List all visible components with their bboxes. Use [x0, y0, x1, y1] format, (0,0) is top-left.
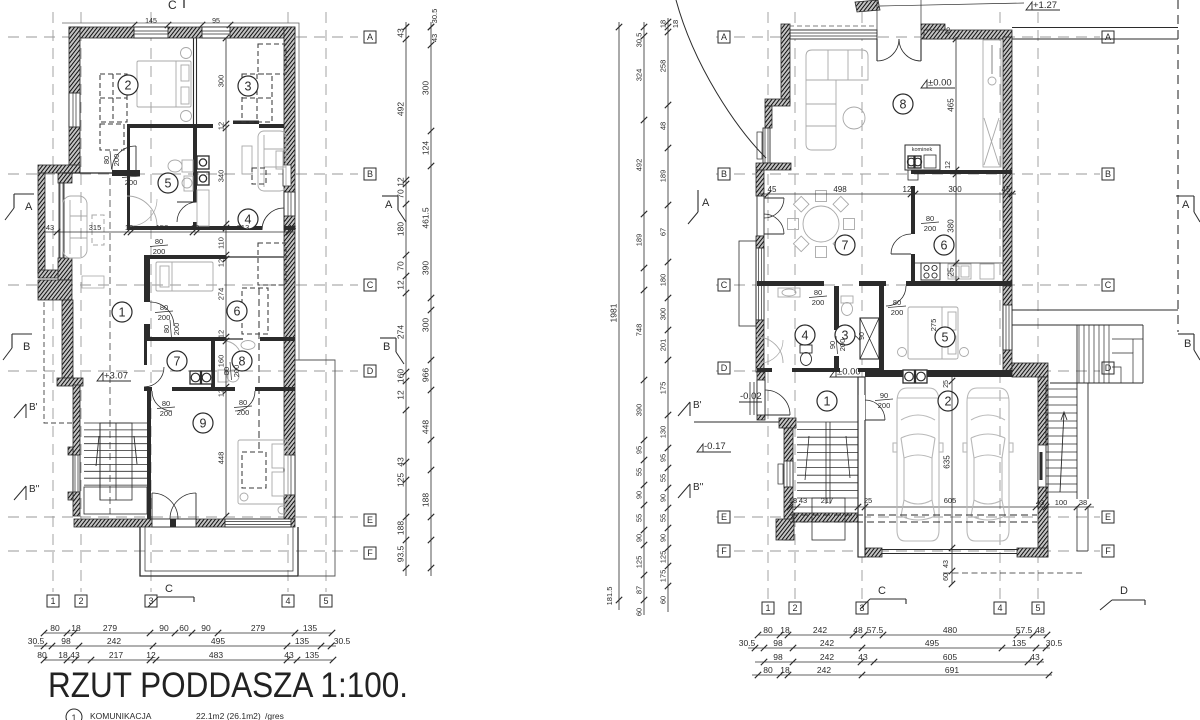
svg-text:145: 145	[145, 18, 157, 25]
svg-text:300: 300	[948, 185, 962, 194]
svg-text:12: 12	[945, 161, 952, 169]
svg-text:B: B	[367, 169, 373, 179]
svg-text:48: 48	[853, 625, 863, 635]
svg-text:135: 135	[295, 636, 309, 646]
svg-text:5: 5	[165, 177, 172, 191]
svg-text:A: A	[702, 197, 710, 209]
svg-text:483: 483	[209, 650, 223, 660]
svg-text:2: 2	[945, 395, 952, 409]
svg-text:B: B	[23, 341, 30, 353]
svg-text:200: 200	[838, 339, 847, 352]
svg-text:43: 43	[46, 223, 54, 232]
svg-text:55: 55	[659, 474, 668, 482]
svg-text:12: 12	[146, 650, 156, 660]
svg-text:18: 18	[71, 623, 81, 633]
svg-text:D: D	[1105, 363, 1112, 373]
svg-text:55: 55	[635, 514, 644, 522]
svg-text:18: 18	[659, 20, 668, 28]
svg-text:2: 2	[78, 596, 83, 606]
svg-text:300: 300	[421, 318, 431, 332]
svg-text:B: B	[1105, 169, 1111, 179]
svg-text:C: C	[721, 280, 728, 290]
svg-text:125: 125	[635, 556, 644, 569]
svg-text:A: A	[721, 32, 727, 42]
svg-text:B: B	[383, 341, 390, 353]
svg-text:22.1m2 (26.1m2): 22.1m2 (26.1m2)	[196, 711, 261, 720]
svg-text:124: 124	[421, 141, 431, 155]
svg-text:160: 160	[217, 355, 226, 368]
svg-text:275: 275	[929, 319, 938, 332]
svg-text:F: F	[721, 546, 727, 556]
svg-text:43: 43	[288, 223, 296, 232]
svg-text:175: 175	[659, 382, 668, 395]
svg-text:B': B'	[693, 400, 702, 411]
svg-text:80: 80	[162, 325, 171, 333]
svg-text:57.5: 57.5	[1016, 625, 1033, 635]
svg-text:461.5: 461.5	[421, 207, 431, 229]
svg-text:12: 12	[396, 390, 406, 400]
svg-text:38: 38	[1079, 498, 1087, 507]
svg-text:KOMUNIKACJA: KOMUNIKACJA	[90, 711, 152, 720]
svg-text:E: E	[367, 515, 373, 525]
svg-text:200: 200	[812, 298, 825, 307]
svg-text:200: 200	[891, 308, 904, 317]
svg-text:90: 90	[859, 332, 866, 340]
svg-text:90: 90	[635, 491, 644, 499]
svg-text:160: 160	[396, 369, 406, 383]
svg-text:8: 8	[900, 98, 907, 112]
svg-text:1: 1	[119, 306, 126, 320]
svg-text:A: A	[367, 32, 373, 42]
svg-text:90: 90	[828, 341, 837, 349]
svg-text:25: 25	[947, 267, 956, 276]
svg-text:30.5: 30.5	[28, 636, 45, 646]
svg-text:200: 200	[158, 313, 171, 322]
svg-text:6: 6	[234, 305, 241, 319]
svg-text:12: 12	[217, 389, 226, 397]
svg-text:30.5: 30.5	[1046, 638, 1063, 648]
svg-text:492: 492	[635, 159, 644, 172]
svg-text:/gres: /gres	[265, 711, 284, 720]
svg-text:201: 201	[659, 339, 668, 352]
svg-text:30.5: 30.5	[334, 636, 351, 646]
svg-text:43: 43	[70, 650, 80, 660]
svg-text:80: 80	[155, 237, 163, 246]
svg-text:279: 279	[103, 623, 117, 633]
svg-text:80: 80	[127, 168, 135, 177]
svg-text:12: 12	[217, 122, 226, 130]
svg-text:3: 3	[245, 80, 252, 94]
svg-text:45: 45	[768, 185, 777, 194]
svg-text:5: 5	[323, 596, 328, 606]
svg-text:B: B	[1184, 338, 1191, 350]
svg-text:93.5: 93.5	[396, 545, 406, 562]
svg-text:635: 635	[943, 455, 952, 469]
svg-text:55: 55	[635, 468, 644, 476]
svg-text:200: 200	[112, 154, 121, 167]
svg-text:80: 80	[37, 650, 47, 660]
svg-text:90: 90	[159, 623, 169, 633]
svg-text:18: 18	[780, 665, 790, 675]
svg-text:7: 7	[174, 355, 181, 369]
svg-text:448: 448	[421, 420, 431, 434]
svg-text:43: 43	[1030, 652, 1040, 662]
svg-text:300: 300	[421, 81, 431, 95]
svg-text:217: 217	[109, 650, 123, 660]
svg-text:200: 200	[160, 409, 173, 418]
svg-text:87: 87	[635, 586, 644, 594]
svg-text:300: 300	[659, 308, 668, 321]
svg-text:90: 90	[201, 623, 211, 633]
svg-text:691: 691	[945, 665, 959, 675]
svg-text:A: A	[25, 201, 33, 213]
svg-text:2: 2	[792, 603, 797, 613]
svg-text:48: 48	[659, 122, 668, 130]
svg-text:480: 480	[943, 625, 957, 635]
svg-text:60: 60	[659, 596, 668, 604]
svg-text:200: 200	[878, 401, 891, 410]
svg-text:43: 43	[943, 560, 950, 568]
svg-text:242: 242	[820, 652, 834, 662]
svg-text:18: 18	[780, 625, 790, 635]
svg-text:98: 98	[61, 636, 71, 646]
svg-text:55: 55	[659, 514, 668, 522]
svg-text:B'': B''	[693, 482, 704, 493]
svg-text:30.5: 30.5	[739, 638, 756, 648]
svg-text:12: 12	[217, 330, 226, 338]
svg-text:+1.27: +1.27	[1033, 0, 1057, 11]
svg-text:242: 242	[813, 625, 827, 635]
svg-text:80: 80	[50, 623, 60, 633]
svg-text:1: 1	[71, 713, 76, 720]
svg-text:90: 90	[880, 391, 888, 400]
svg-text:C: C	[367, 280, 374, 290]
svg-text:2: 2	[125, 79, 132, 93]
svg-text:70: 70	[396, 189, 406, 199]
svg-text:12: 12	[396, 177, 406, 187]
svg-text:45: 45	[1002, 185, 1011, 194]
svg-text:279: 279	[251, 623, 265, 633]
svg-text:135: 135	[1012, 638, 1026, 648]
svg-text:A: A	[385, 199, 393, 211]
svg-text:80: 80	[239, 398, 247, 407]
svg-text:1: 1	[824, 395, 831, 409]
svg-text:B'': B''	[29, 484, 40, 495]
svg-text:-0.17: -0.17	[704, 441, 726, 452]
svg-text:217: 217	[821, 496, 834, 505]
svg-text:274: 274	[396, 325, 406, 339]
svg-text:±0.00: ±0.00	[928, 78, 952, 89]
svg-text:5: 5	[942, 331, 949, 345]
svg-text:12: 12	[191, 223, 199, 232]
svg-text:390: 390	[421, 261, 431, 275]
svg-text:125: 125	[396, 473, 406, 487]
svg-text:242: 242	[820, 638, 834, 648]
svg-text:B: B	[721, 169, 727, 179]
svg-text:C: C	[168, 0, 177, 12]
svg-text:110: 110	[217, 237, 226, 249]
svg-text:180: 180	[396, 222, 406, 236]
svg-text:-0.02: -0.02	[740, 391, 762, 402]
svg-text:80: 80	[162, 399, 170, 408]
svg-text:C: C	[1105, 280, 1112, 290]
svg-text:189: 189	[635, 234, 644, 247]
svg-text:6: 6	[941, 239, 948, 253]
svg-text:60: 60	[635, 608, 644, 616]
svg-text:90: 90	[659, 534, 668, 542]
svg-text:95: 95	[212, 18, 220, 25]
svg-text:495: 495	[211, 636, 225, 646]
svg-text:313: 313	[237, 223, 250, 232]
svg-text:200: 200	[153, 247, 166, 256]
svg-text:135: 135	[303, 623, 317, 633]
svg-text:67: 67	[659, 228, 668, 236]
svg-text:43: 43	[1036, 498, 1044, 507]
svg-text:80: 80	[926, 214, 934, 223]
svg-text:43: 43	[396, 457, 406, 467]
svg-text:B': B'	[29, 402, 38, 413]
svg-text:E: E	[1105, 512, 1111, 522]
svg-text:F: F	[1105, 546, 1111, 556]
svg-text:12: 12	[396, 280, 406, 290]
svg-text:324: 324	[635, 69, 644, 82]
svg-text:kominek: kominek	[912, 147, 933, 153]
svg-text:200: 200	[237, 408, 250, 417]
svg-text:242: 242	[817, 665, 831, 675]
svg-text:A: A	[1105, 32, 1111, 42]
svg-text:43: 43	[799, 496, 807, 505]
svg-text:200: 200	[172, 323, 181, 336]
svg-text:12: 12	[903, 185, 912, 194]
svg-text:95: 95	[635, 446, 644, 454]
svg-text:135: 135	[305, 650, 319, 660]
svg-text:80: 80	[763, 665, 773, 675]
svg-text:D: D	[721, 363, 728, 373]
svg-text:130: 130	[659, 426, 668, 439]
svg-text:340: 340	[217, 170, 226, 183]
svg-text:70: 70	[396, 261, 406, 271]
svg-text:30.5: 30.5	[635, 33, 644, 48]
svg-text:498: 498	[833, 185, 847, 194]
svg-text:18: 18	[58, 650, 68, 660]
svg-text:18: 18	[671, 20, 680, 28]
svg-text:1: 1	[50, 596, 55, 606]
svg-text:±0.00: ±0.00	[837, 367, 861, 378]
svg-text:98: 98	[773, 652, 783, 662]
svg-text:80: 80	[160, 303, 168, 312]
svg-text:80: 80	[814, 288, 822, 297]
svg-text:605: 605	[943, 652, 957, 662]
svg-text:158: 158	[156, 223, 169, 232]
svg-text:C: C	[878, 585, 886, 597]
svg-text:1981: 1981	[609, 303, 619, 322]
svg-text:125: 125	[659, 551, 668, 564]
svg-text:100: 100	[1055, 498, 1068, 507]
svg-text:80: 80	[893, 298, 901, 307]
svg-text:D: D	[1120, 585, 1128, 597]
svg-text:188: 188	[421, 493, 431, 507]
svg-text:492: 492	[396, 102, 406, 116]
svg-text:12: 12	[217, 259, 226, 267]
svg-text:495: 495	[925, 638, 939, 648]
svg-text:90: 90	[635, 534, 644, 542]
svg-text:RZUT PODDASZA 1:100.: RZUT PODDASZA 1:100.	[48, 666, 408, 705]
svg-text:315: 315	[89, 223, 102, 232]
svg-text:448: 448	[217, 452, 226, 465]
svg-text:1: 1	[765, 603, 770, 613]
svg-text:E: E	[721, 512, 727, 522]
svg-text:98: 98	[773, 638, 783, 648]
svg-text:43: 43	[858, 652, 868, 662]
svg-text:188: 188	[396, 521, 406, 535]
svg-text:5: 5	[1035, 603, 1040, 613]
svg-text:43: 43	[284, 650, 294, 660]
svg-text:12: 12	[125, 223, 133, 232]
svg-text:D: D	[367, 366, 374, 376]
svg-text:180: 180	[659, 274, 668, 287]
svg-text:966: 966	[421, 368, 431, 382]
svg-text:30.5: 30.5	[430, 9, 439, 24]
svg-text:175: 175	[659, 570, 668, 583]
svg-text:465: 465	[947, 98, 956, 112]
svg-text:43: 43	[430, 34, 439, 42]
svg-text:189: 189	[659, 170, 668, 183]
svg-text:A: A	[1182, 199, 1190, 211]
svg-text:200: 200	[924, 224, 937, 233]
svg-text:181.5: 181.5	[605, 587, 614, 606]
svg-text:80: 80	[102, 156, 111, 164]
svg-text:9: 9	[200, 417, 207, 431]
svg-text:95: 95	[659, 454, 668, 462]
svg-text:90: 90	[659, 494, 668, 502]
svg-text:45: 45	[945, 27, 952, 35]
svg-text:300: 300	[217, 75, 226, 88]
svg-text:60: 60	[179, 623, 189, 633]
svg-text:390: 390	[635, 404, 644, 417]
svg-text:380: 380	[947, 219, 956, 233]
svg-text:258: 258	[659, 60, 668, 73]
svg-text:25: 25	[943, 380, 950, 388]
svg-text:80: 80	[222, 367, 231, 375]
svg-text:274: 274	[217, 288, 226, 301]
svg-text:F: F	[367, 548, 373, 558]
svg-text:4: 4	[802, 329, 809, 343]
svg-text:200: 200	[125, 178, 138, 187]
svg-text:4: 4	[997, 603, 1002, 613]
svg-text:+3.07: +3.07	[104, 371, 128, 382]
svg-text:748: 748	[635, 324, 644, 337]
svg-text:7: 7	[842, 239, 849, 253]
svg-text:57.5: 57.5	[867, 625, 884, 635]
svg-text:200: 200	[232, 365, 241, 378]
svg-text:80: 80	[763, 625, 773, 635]
svg-text:242: 242	[107, 636, 121, 646]
svg-text:C: C	[165, 583, 173, 595]
svg-text:605: 605	[944, 496, 957, 505]
svg-text:48: 48	[1035, 625, 1045, 635]
svg-text:4: 4	[285, 596, 290, 606]
